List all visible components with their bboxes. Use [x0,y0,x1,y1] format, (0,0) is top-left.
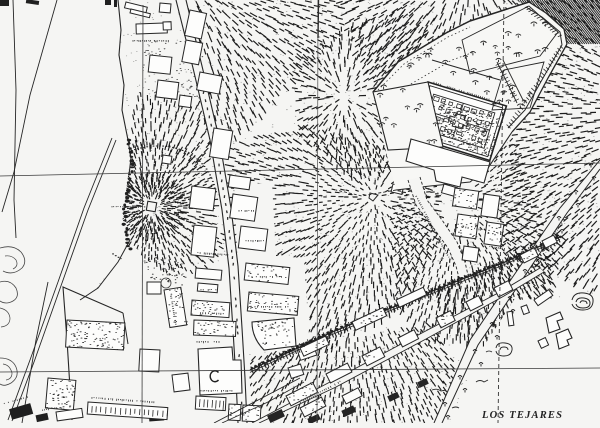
svg-text:LOS TEJARES: LOS TEJARES [481,410,563,421]
